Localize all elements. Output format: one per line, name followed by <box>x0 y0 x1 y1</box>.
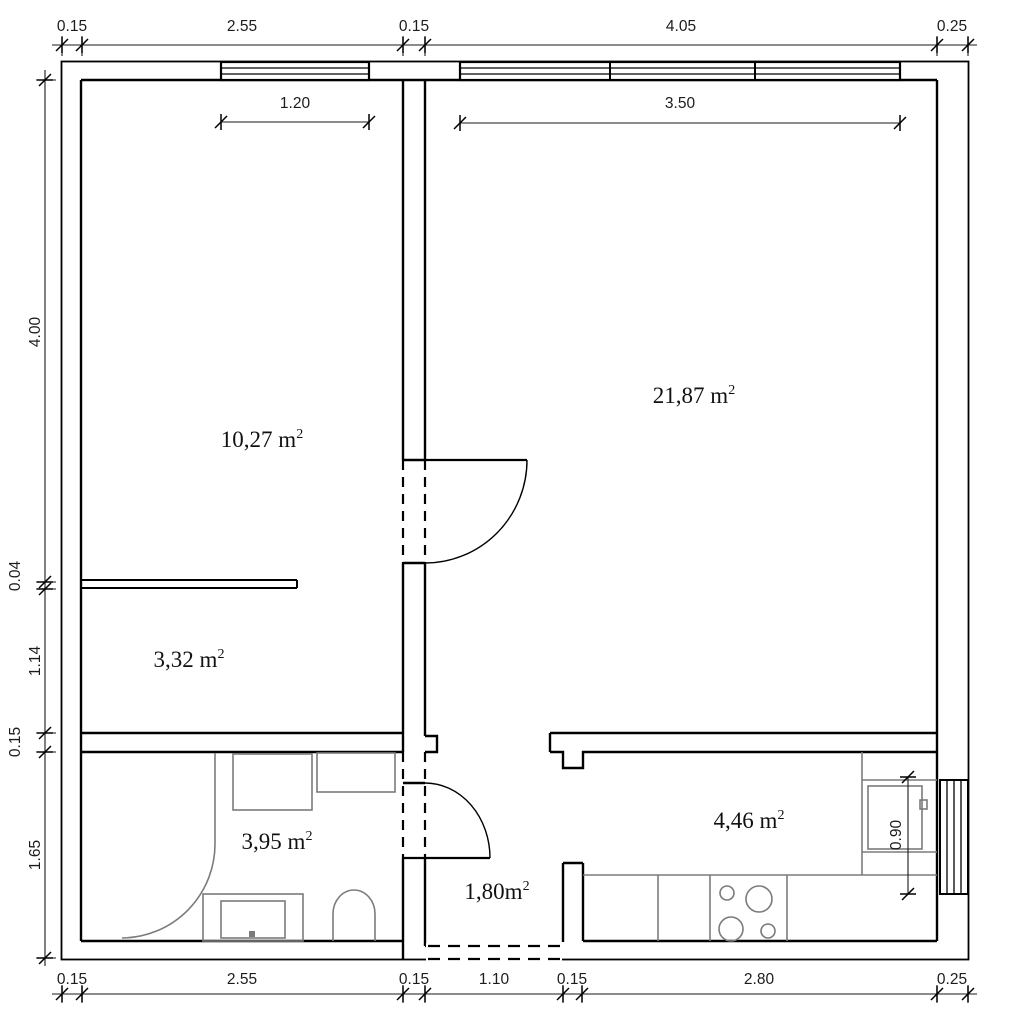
kitchen-left-wall <box>563 863 583 942</box>
room-area-value: 21,87 m <box>653 383 729 408</box>
dim-right-window <box>454 115 906 131</box>
burner-large <box>746 886 772 912</box>
dim-label: 0.15 <box>7 727 24 757</box>
dim-label: 2.80 <box>744 971 775 988</box>
room-area-value: 1,80m <box>464 879 522 904</box>
burner-large <box>719 917 743 941</box>
dim-label: 2.55 <box>227 18 257 35</box>
washing-machine <box>233 754 312 810</box>
wall-pier <box>425 736 437 752</box>
room-area-value: 4,46 m <box>714 808 778 833</box>
dim-chain-bottom <box>52 985 977 1003</box>
room-label-hallway: 1,80m2 <box>464 879 529 904</box>
dim-label: 0.04 <box>7 561 24 592</box>
dim-label: 0.15 <box>57 971 87 988</box>
dim-label: 1.65 <box>27 840 44 870</box>
dim-label: 1.14 <box>27 646 44 677</box>
room-area-sup: 2 <box>523 879 530 894</box>
room-label-living: 21,87 m2 <box>653 383 735 408</box>
room-label-large-left: 10,27 m2 <box>221 427 303 452</box>
bathroom-sink <box>317 753 395 792</box>
dim-label: 4.00 <box>27 317 44 348</box>
dim-label: 4.05 <box>666 18 696 35</box>
room-label-alcove: 3,32 m2 <box>154 647 225 672</box>
window-kitchen <box>940 780 968 894</box>
inner-wall-edges <box>81 80 937 941</box>
dimension-labels: 0.15 2.55 0.15 4.05 0.25 4.00 0.04 1.14 … <box>7 18 967 988</box>
dim-label: 0.15 <box>399 18 429 35</box>
room-label-kitchen: 4,46 m2 <box>714 808 785 833</box>
toilet <box>333 890 375 941</box>
dim-label: 0.25 <box>937 18 967 35</box>
dim-label: 0.25 <box>937 971 967 988</box>
walls <box>62 62 969 961</box>
floor-plan-canvas: 0.15 2.55 0.15 4.05 0.25 4.00 0.04 1.14 … <box>0 0 1010 1024</box>
floor-plan-page: 0.15 2.55 0.15 4.05 0.25 4.00 0.04 1.14 … <box>0 0 1010 1024</box>
windows <box>221 62 968 894</box>
room-area-sup: 2 <box>728 383 735 398</box>
door-living-room <box>425 460 527 563</box>
room-area-sup: 2 <box>305 829 312 844</box>
room-area-value: 3,95 m <box>242 829 306 854</box>
cooktop <box>719 886 775 941</box>
partition-wall <box>81 580 297 588</box>
burner-small <box>761 924 775 938</box>
outer-wall-outline <box>62 62 969 960</box>
room-area-sup: 2 <box>217 647 224 662</box>
bathroom-top-wall <box>81 733 403 752</box>
entrance-opening <box>426 943 562 962</box>
dim-chain-top <box>52 36 977 56</box>
dim-label: 0.15 <box>399 971 429 988</box>
dim-label: 2.55 <box>227 971 257 988</box>
dim-label: 0.15 <box>557 971 587 988</box>
dim-label: 1.20 <box>280 95 311 112</box>
dimensions <box>36 36 977 1003</box>
room-area-sup: 2 <box>296 427 303 442</box>
door-bathroom <box>403 783 490 858</box>
room-area-sup: 2 <box>777 808 784 823</box>
vanity-unit <box>203 894 303 941</box>
door-opening-dashes <box>403 460 425 858</box>
door-swing-arc <box>425 460 527 563</box>
dim-chain-left <box>36 70 56 966</box>
dim-label: 3.50 <box>665 95 696 112</box>
dim-left-window <box>215 114 375 130</box>
burner-small <box>720 886 734 900</box>
room-area-value: 10,27 m <box>221 427 297 452</box>
shower-enclosure <box>122 753 215 938</box>
room-label-bathroom: 3,95 m2 <box>242 829 313 854</box>
door-swing-arc <box>425 783 490 858</box>
dim-label: 1.10 <box>479 971 510 988</box>
dim-label: 0.15 <box>57 18 87 35</box>
room-area-value: 3,32 m <box>154 647 218 672</box>
faucet <box>920 800 927 809</box>
dim-label: 0.90 <box>888 820 905 851</box>
window-left-room <box>221 62 369 80</box>
window-living-room <box>460 62 900 80</box>
kitchen-top-wall <box>550 733 937 768</box>
room-labels: 10,27 m2 21,87 m2 3,32 m2 3,95 m2 1,80m2… <box>154 383 785 904</box>
middle-wall <box>403 80 437 960</box>
doors <box>403 460 527 858</box>
